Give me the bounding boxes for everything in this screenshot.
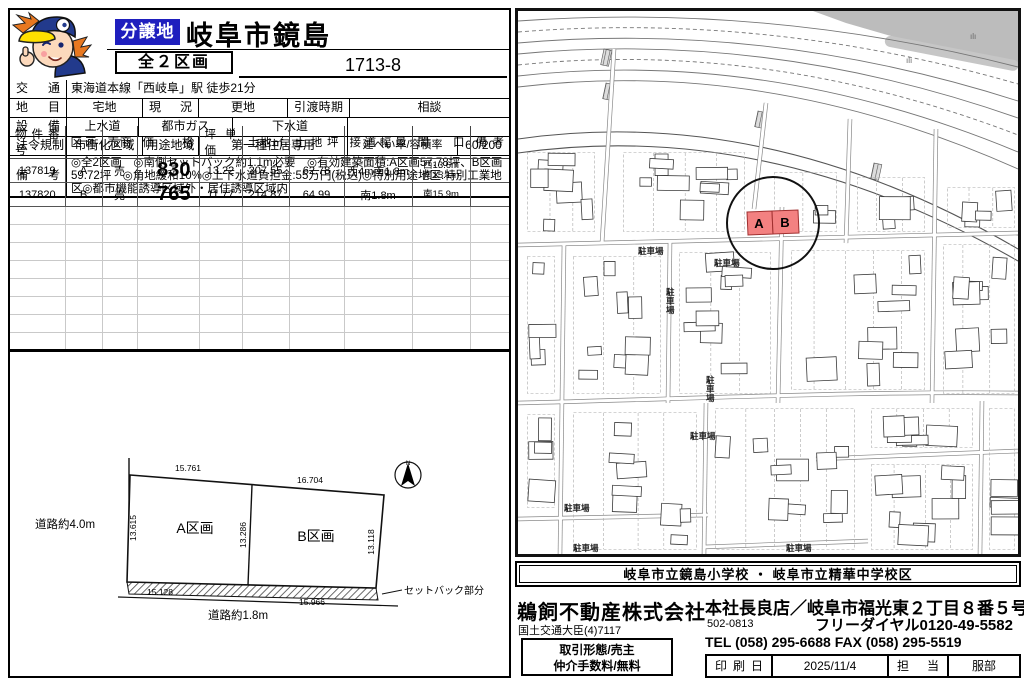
empty-cell (10, 333, 65, 351)
dim-a-left: 13.615 (128, 515, 138, 541)
empty-row (10, 333, 509, 351)
empty-cell (289, 261, 344, 279)
empty-cell (242, 279, 289, 297)
dim-b-top: 16.704 (297, 475, 323, 485)
empty-cell (242, 333, 289, 351)
north-compass-icon: N (395, 461, 421, 488)
empty-cell (10, 279, 65, 297)
empty-cell (470, 261, 509, 279)
empty-cell (102, 279, 137, 297)
cell-sqm: 214.87 (242, 183, 289, 207)
empty-cell (470, 333, 509, 351)
empty-cell (344, 243, 412, 261)
empty-cell (344, 279, 412, 297)
dim-middle: 13.286 (238, 522, 248, 548)
empty-cell (470, 207, 509, 225)
spec-row-access: 交通 東海道本線「西岐阜」駅 徒歩21分 (10, 80, 509, 99)
empty-cell (344, 225, 412, 243)
empty-cell (102, 225, 137, 243)
staff-label: 担当 (887, 656, 947, 676)
lot-b-label: B区画 (297, 528, 334, 544)
property-number: 1713-8 (239, 55, 507, 76)
empty-cell (65, 243, 102, 261)
empty-cell (289, 243, 344, 261)
listing-header-9: 備考 (470, 126, 509, 159)
listing-header-1: 区画 (65, 126, 102, 159)
parking-label: 駐車場 (706, 375, 715, 403)
listing-header-0: 物件番号 (10, 126, 65, 159)
vegetation-mark: ılı (970, 32, 976, 41)
map-lot-b-label: B (780, 215, 789, 230)
empty-cell (137, 225, 199, 243)
empty-cell (289, 279, 344, 297)
empty-cell (344, 333, 412, 351)
empty-cell (65, 225, 102, 243)
empty-cell (199, 315, 242, 333)
cell-sale: 売 (102, 159, 137, 183)
cell-price: 765 (137, 183, 199, 207)
cell-tsubo: 64.99 (289, 183, 344, 207)
dim-b-right: 13.118 (366, 529, 376, 555)
empty-cell (102, 297, 137, 315)
property-info-panel: 分譲地 岐阜市鏡島 全２区画 1713-8 交通 東海道本線「西岐阜」駅 徒歩2… (8, 8, 511, 678)
print-date-label: 印刷日 (707, 656, 771, 676)
cell-sqm: 207.55 (242, 159, 289, 183)
school-district-box: 岐阜市立鏡島小学校 ・ 岐阜市立精華中学校区 (515, 561, 1021, 587)
parking-label: 駐車場 (638, 246, 664, 256)
area-map-panel: ılı ılı 駐車場駐車場駐車場駐車場駐車場駐車場駐車場駐車場 A B (515, 8, 1021, 557)
empty-cell (65, 333, 102, 351)
empty-row (10, 207, 509, 225)
empty-cell (199, 333, 242, 351)
listing-header-2: 売商 (102, 126, 137, 159)
setback-label: セットバック部分 (404, 584, 484, 597)
empty-row (10, 297, 509, 315)
empty-cell (10, 261, 65, 279)
spec-row-land: 地目 宅地 現況 更地 引渡時期 相談 (10, 99, 509, 118)
cell-road: 西4m南1.8m (344, 159, 412, 183)
empty-cell (344, 297, 412, 315)
empty-cell (470, 225, 509, 243)
listing-header-7: 接道幅員 (344, 126, 412, 159)
listing-header-3: 価格 (137, 126, 199, 159)
cell-unit: 13.22 (199, 159, 242, 183)
deal-type-box: 取引形態/売主 仲介手数料/無料 (521, 638, 673, 676)
empty-cell (470, 315, 509, 333)
print-info-row: 印刷日 2025/11/4 担当 服部 (705, 654, 1021, 678)
empty-cell (470, 279, 509, 297)
empty-cell (289, 333, 344, 351)
empty-cell (470, 243, 509, 261)
cell-no: 137820 (10, 183, 65, 207)
empty-cell (65, 279, 102, 297)
empty-cell (10, 315, 65, 333)
cell-lot: A (65, 159, 102, 183)
cell-unit: 11.77 (199, 183, 242, 207)
brokerage-fee: 仲介手数料/無料 (523, 658, 671, 674)
parking-label: 駐車場 (666, 287, 675, 315)
parking-label: 駐車場 (690, 431, 716, 441)
map-lot-a-label: A (754, 216, 764, 231)
empty-cell (10, 243, 65, 261)
parking-label: 駐車場 (786, 543, 812, 553)
empty-cell (412, 225, 470, 243)
empty-cell (137, 297, 199, 315)
cell-note (470, 159, 509, 183)
empty-cell (10, 297, 65, 315)
empty-cell (102, 207, 137, 225)
empty-cell (289, 297, 344, 315)
dim-a-bottom: 15.128 (147, 587, 173, 597)
school-district-text: 岐阜市立鏡島小学校 ・ 岐阜市立精華中学校区 (519, 565, 1017, 583)
empty-cell (65, 261, 102, 279)
cell-price: 830 (137, 159, 199, 183)
empty-cell (344, 261, 412, 279)
empty-cell (242, 315, 289, 333)
empty-cell (65, 207, 102, 225)
cell-frontage: 西13.6m 南15.1m (412, 159, 470, 183)
page-title: 岐阜市鏡島 (186, 14, 331, 53)
empty-cell (137, 243, 199, 261)
listing-header-6: 土地坪 (289, 126, 344, 159)
empty-cell (102, 315, 137, 333)
license-number: 国土交通大臣(4)7117 (518, 622, 621, 638)
handover-value: 相談 (349, 99, 509, 117)
land-category-value: 宅地 (66, 99, 142, 117)
handover-label: 引渡時期 (287, 99, 349, 117)
parking-label: 駐車場 (564, 503, 590, 513)
land-category-label: 地目 (10, 99, 66, 117)
empty-cell (412, 243, 470, 261)
empty-cell (242, 261, 289, 279)
empty-cell (344, 207, 412, 225)
access-value: 東海道本線「西岐阜」駅 徒歩21分 (66, 80, 509, 98)
listing-header-row: 物件番号区画売商価格坪単価土地㎡土地坪接道幅員間口備考 (10, 126, 509, 159)
empty-cell (412, 333, 470, 351)
empty-cell (412, 207, 470, 225)
print-date-value: 2025/11/4 (771, 656, 887, 676)
toll-free-number: フリーダイヤル0120-49-5582 (815, 614, 1013, 635)
listing-header-5: 土地㎡ (242, 126, 289, 159)
empty-cell (102, 261, 137, 279)
empty-cell (199, 243, 242, 261)
tel-fax: TEL (058) 295-6688 FAX (058) 295-5519 (705, 634, 962, 650)
cadastral-map: ılı ılı 駐車場駐車場駐車場駐車場駐車場駐車場駐車場駐車場 A B (518, 11, 1018, 554)
empty-cell (137, 333, 199, 351)
listing-row: 137819A売83013.22207.5562.78西4m南1.8m西13.6… (10, 159, 509, 183)
empty-row (10, 315, 509, 333)
company-mascot-logo (11, 11, 111, 78)
deal-type: 取引形態/売主 (523, 642, 671, 658)
empty-cell (199, 207, 242, 225)
dim-a-top: 15.761 (175, 463, 201, 473)
empty-cell (242, 297, 289, 315)
lot-count-box: 全２区画 (115, 51, 233, 74)
empty-cell (242, 207, 289, 225)
cell-sale: 売 (102, 183, 137, 207)
empty-cell (65, 315, 102, 333)
lot-a-label: A区画 (176, 520, 213, 536)
subject-lots: A B (727, 177, 819, 269)
road-bottom-label: 道路約1.8m (208, 608, 268, 622)
empty-cell (199, 297, 242, 315)
postal-code: 502-0813 (707, 618, 754, 630)
cell-no: 137819 (10, 159, 65, 183)
company-info: 鵜飼不動産株式会社 国土交通大臣(4)7117 取引形態/売主 仲介手数料/無料… (515, 590, 1021, 680)
empty-cell (137, 279, 199, 297)
empty-row (10, 243, 509, 261)
flyer-page: 分譲地 岐阜市鏡島 全２区画 1713-8 交通 東海道本線「西岐阜」駅 徒歩2… (0, 0, 1024, 685)
empty-cell (242, 243, 289, 261)
empty-cell (289, 207, 344, 225)
cell-lot: B (65, 183, 102, 207)
status-label: 現況 (142, 99, 198, 117)
setback-arrow (382, 590, 402, 594)
listing-header-8: 間口 (412, 126, 470, 159)
empty-cell (137, 207, 199, 225)
empty-cell (412, 315, 470, 333)
empty-cell (102, 243, 137, 261)
empty-cell (242, 225, 289, 243)
cell-tsubo: 62.78 (289, 159, 344, 183)
listing-table: 物件番号区画売商価格坪単価土地㎡土地坪接道幅員間口備考137819A売83013… (10, 126, 509, 352)
empty-cell (344, 315, 412, 333)
status-value: 更地 (198, 99, 287, 117)
north-letter: N (406, 461, 410, 467)
header-divider (107, 49, 509, 50)
empty-cell (412, 261, 470, 279)
parking-label: 駐車場 (573, 543, 599, 553)
empty-cell (199, 261, 242, 279)
empty-cell (65, 297, 102, 315)
empty-cell (137, 315, 199, 333)
empty-cell (10, 207, 65, 225)
sale-type-badge: 分譲地 (115, 19, 180, 45)
lot-outline (127, 475, 384, 588)
listing-header-4: 坪単価 (199, 126, 242, 159)
lot-plan-diagram: A区画 B区画 道路約4.0m 道路約1.8m 15.761 16.704 13… (10, 442, 509, 676)
empty-cell (470, 297, 509, 315)
empty-row (10, 279, 509, 297)
empty-cell (412, 279, 470, 297)
company-name: 鵜飼不動産株式会社 (517, 596, 706, 625)
parking-label: 駐車場 (714, 258, 740, 268)
empty-cell (289, 315, 344, 333)
empty-cell (10, 225, 65, 243)
property-number-underline (239, 76, 507, 78)
staff-name: 服部 (947, 656, 1019, 676)
cell-road: 南1.8m (344, 183, 412, 207)
empty-row (10, 261, 509, 279)
empty-cell (289, 225, 344, 243)
cell-frontage: 南15.9m (412, 183, 470, 207)
empty-cell (412, 297, 470, 315)
empty-row (10, 225, 509, 243)
empty-cell (137, 261, 199, 279)
listing-row: 137820B売76511.77214.8764.99南1.8m南15.9m (10, 183, 509, 207)
empty-cell (102, 333, 137, 351)
dim-b-bottom: 15.966 (299, 597, 325, 607)
empty-cell (199, 225, 242, 243)
road-left-label: 道路約4.0m (35, 517, 95, 531)
empty-cell (199, 279, 242, 297)
access-label: 交通 (10, 80, 66, 98)
cell-note (470, 183, 509, 207)
